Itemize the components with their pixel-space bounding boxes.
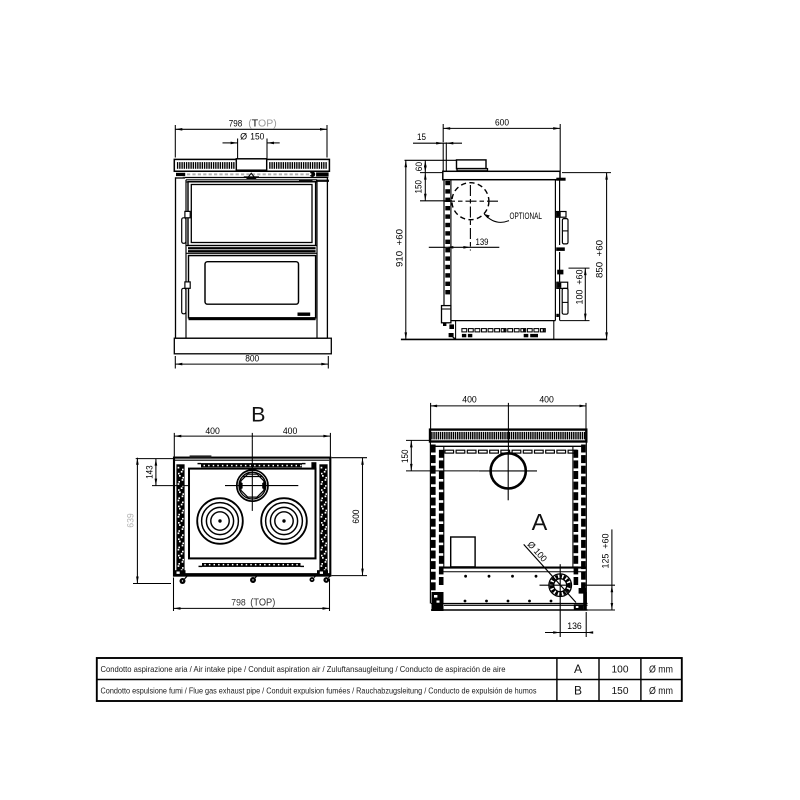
svg-text:798: 798 [229,118,243,128]
svg-text:Condotto aspirazione aria / Ai: Condotto aspirazione aria / Air intake p… [101,664,506,674]
svg-text:850 +60: 850 +60 [595,240,605,278]
svg-text:Ø mm: Ø mm [649,686,673,697]
svg-text:798: 798 [231,597,246,608]
svg-text:139: 139 [476,237,489,247]
svg-text:(TOP): (TOP) [248,118,276,130]
svg-text:Ø: Ø [240,131,247,141]
svg-text:15: 15 [417,132,426,142]
svg-text:400: 400 [283,426,298,436]
svg-text:800: 800 [245,353,259,363]
svg-text:125 +60: 125 +60 [600,534,610,569]
svg-text:150: 150 [400,449,410,463]
svg-text:B: B [574,683,582,697]
svg-text:60: 60 [414,162,424,172]
svg-text:100: 100 [612,664,630,675]
svg-text:143: 143 [144,465,154,479]
svg-text:150: 150 [612,686,630,697]
svg-text:B: B [251,403,265,427]
svg-text:600: 600 [351,510,361,524]
svg-text:150: 150 [413,180,423,194]
svg-text:910 +60: 910 +60 [394,229,404,267]
svg-text:400: 400 [205,426,220,436]
svg-text:Ø mm: Ø mm [649,664,673,675]
svg-text:600: 600 [495,117,509,127]
svg-text:OPTIONAL: OPTIONAL [510,211,543,221]
svg-text:100 +60: 100 +60 [574,270,584,305]
svg-text:A: A [532,509,548,535]
svg-text:136: 136 [567,621,582,631]
svg-text:150: 150 [250,131,264,141]
svg-text:(TOP): (TOP) [250,597,275,609]
svg-text:400: 400 [462,394,477,404]
svg-text:Condotto espulsione fumi / Flu: Condotto espulsione fumi / Flue gas exha… [101,685,537,695]
svg-text:639: 639 [126,513,137,528]
svg-text:A: A [574,662,582,676]
svg-text:400: 400 [539,394,554,404]
